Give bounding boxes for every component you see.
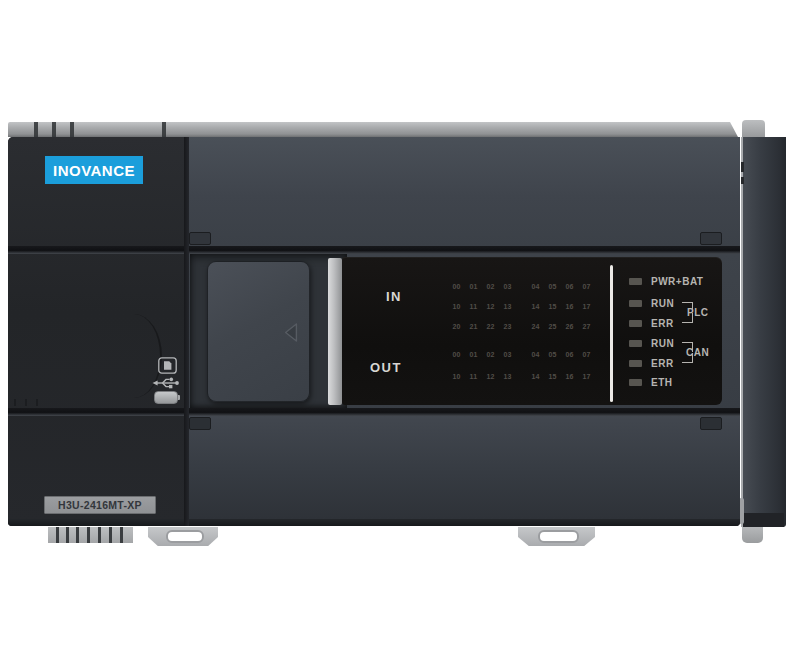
io-digit: 02 <box>482 282 499 291</box>
mounting-clip-left <box>148 527 218 546</box>
io-digit: 00 <box>448 350 465 359</box>
comb-tick <box>87 527 90 543</box>
led-indicator <box>629 340 642 347</box>
rail-tick <box>52 122 56 137</box>
led-indicator <box>629 379 642 386</box>
io-digit: 03 <box>499 282 516 291</box>
led-indicator <box>629 278 642 285</box>
io-out-row-0: 00 01 02 03 04 05 06 07 <box>448 350 595 359</box>
rail-tick <box>162 122 166 137</box>
io-in-row-1: 10 11 12 13 14 15 16 17 <box>448 302 595 311</box>
battery-icon <box>154 391 178 404</box>
led-label: PWR+BAT <box>651 276 703 287</box>
io-digit: 16 <box>561 302 578 311</box>
comb-tick <box>76 527 79 543</box>
led-label: RUN <box>651 338 674 349</box>
io-digit: 04 <box>527 282 544 291</box>
flange-seam-dash <box>741 162 744 172</box>
io-digit: 05 <box>544 282 561 291</box>
flange-seam-dash <box>741 177 744 184</box>
io-in-row-0: 00 01 02 03 04 05 06 07 <box>448 282 595 291</box>
right-side-flange <box>741 137 786 527</box>
io-digit: 16 <box>561 372 578 381</box>
io-digit: 03 <box>499 350 516 359</box>
brand-logo: INOVANCE <box>45 156 143 184</box>
led-indicator <box>629 300 642 307</box>
sd-card-icon <box>158 357 177 374</box>
in-label: IN <box>386 290 402 303</box>
io-digit: 21 <box>465 322 482 331</box>
io-digit: 26 <box>561 322 578 331</box>
led-label: ETH <box>651 377 673 388</box>
din-clip-top-knob <box>742 120 765 138</box>
io-digit: 25 <box>544 322 561 331</box>
comb-tick <box>109 527 112 543</box>
status-row-plc-err: ERR <box>629 317 674 329</box>
battery-icon-nub <box>178 395 180 400</box>
io-digit: 14 <box>527 302 544 311</box>
status-row-can-run: RUN <box>629 337 674 349</box>
io-out-row-1: 10 11 12 13 14 15 16 17 <box>448 372 595 381</box>
clip-notch <box>700 232 722 245</box>
horizontal-seam-lower <box>8 408 740 416</box>
clip-notch <box>700 417 722 430</box>
left-expansion-door <box>8 137 186 526</box>
io-digit: 22 <box>482 322 499 331</box>
rail-tick <box>70 122 74 137</box>
out-label: OUT <box>370 361 402 374</box>
led-label: ERR <box>651 318 674 329</box>
led-panel-separator-line <box>610 265 613 402</box>
io-digit: 10 <box>448 302 465 311</box>
io-digit: 13 <box>499 372 516 381</box>
led-label: RUN <box>651 298 674 309</box>
io-digit: 10 <box>448 372 465 381</box>
status-row-pwr-bat: PWR+BAT <box>629 275 703 287</box>
io-digit: 07 <box>578 282 595 291</box>
io-digit: 11 <box>465 372 482 381</box>
io-digit: 06 <box>561 350 578 359</box>
io-digit: 02 <box>482 350 499 359</box>
status-row-plc-run: RUN <box>629 297 674 309</box>
led-indicator <box>629 320 642 327</box>
io-digit: 24 <box>527 322 544 331</box>
io-digit: 11 <box>465 302 482 311</box>
io-digit: 01 <box>465 350 482 359</box>
flange-bottom-band <box>743 513 784 527</box>
status-row-eth: ETH <box>629 376 673 388</box>
io-in-row-2: 20 21 22 23 24 25 26 27 <box>448 322 595 331</box>
body-top-section <box>186 137 740 246</box>
clip-notch <box>189 417 211 430</box>
io-digit: 04 <box>527 350 544 359</box>
io-digit: 27 <box>578 322 595 331</box>
can-group-label: CAN <box>686 347 709 358</box>
io-digit: 00 <box>448 282 465 291</box>
io-digit: 01 <box>465 282 482 291</box>
status-row-can-err: ERR <box>629 357 674 369</box>
io-digit: 07 <box>578 350 595 359</box>
comb-tick <box>56 527 59 543</box>
mounting-clip-right <box>518 527 595 546</box>
model-number-text: H3U-2416MT-XP <box>58 499 142 511</box>
top-din-rail <box>8 122 738 137</box>
io-digit: 23 <box>499 322 516 331</box>
bottom-terminal-comb <box>48 527 133 543</box>
io-digit: 12 <box>482 302 499 311</box>
mounting-clip-slot <box>538 530 579 543</box>
comb-tick <box>66 527 69 543</box>
led-indicator <box>629 360 642 367</box>
comb-tick <box>120 527 123 543</box>
vent-tick <box>14 399 16 406</box>
brand-logo-text: INOVANCE <box>53 162 135 179</box>
body-bottom-edge <box>8 519 740 526</box>
io-digit: 14 <box>527 372 544 381</box>
usb-icon <box>152 376 179 390</box>
mounting-clip-slot <box>166 530 204 543</box>
led-label: ERR <box>651 358 674 369</box>
vent-tick <box>25 399 27 406</box>
io-digit: 06 <box>561 282 578 291</box>
model-number-badge: H3U-2416MT-XP <box>44 496 156 514</box>
vertical-seam-left-door <box>184 137 189 526</box>
io-digit: 12 <box>482 372 499 381</box>
io-digit: 20 <box>448 322 465 331</box>
io-digit: 15 <box>544 372 561 381</box>
vent-tick <box>36 399 38 406</box>
io-digit: 05 <box>544 350 561 359</box>
horizontal-seam-upper <box>8 246 740 254</box>
body-bottom-section <box>186 416 740 519</box>
io-digit: 17 <box>578 302 595 311</box>
rail-tick <box>34 122 38 137</box>
comb-tick <box>98 527 101 543</box>
plc-device-photo: INOVANCE IN OUT 00 01 02 03 04 05 06 07 … <box>0 0 795 656</box>
io-digit: 15 <box>544 302 561 311</box>
plc-group-label: PLC <box>687 307 709 318</box>
io-digit: 17 <box>578 372 595 381</box>
cover-open-arrow-icon <box>284 322 298 343</box>
clip-notch <box>189 232 211 245</box>
io-digit: 13 <box>499 302 516 311</box>
din-clip-bottom-knob <box>742 527 763 543</box>
led-window-metal-trim <box>328 258 342 405</box>
